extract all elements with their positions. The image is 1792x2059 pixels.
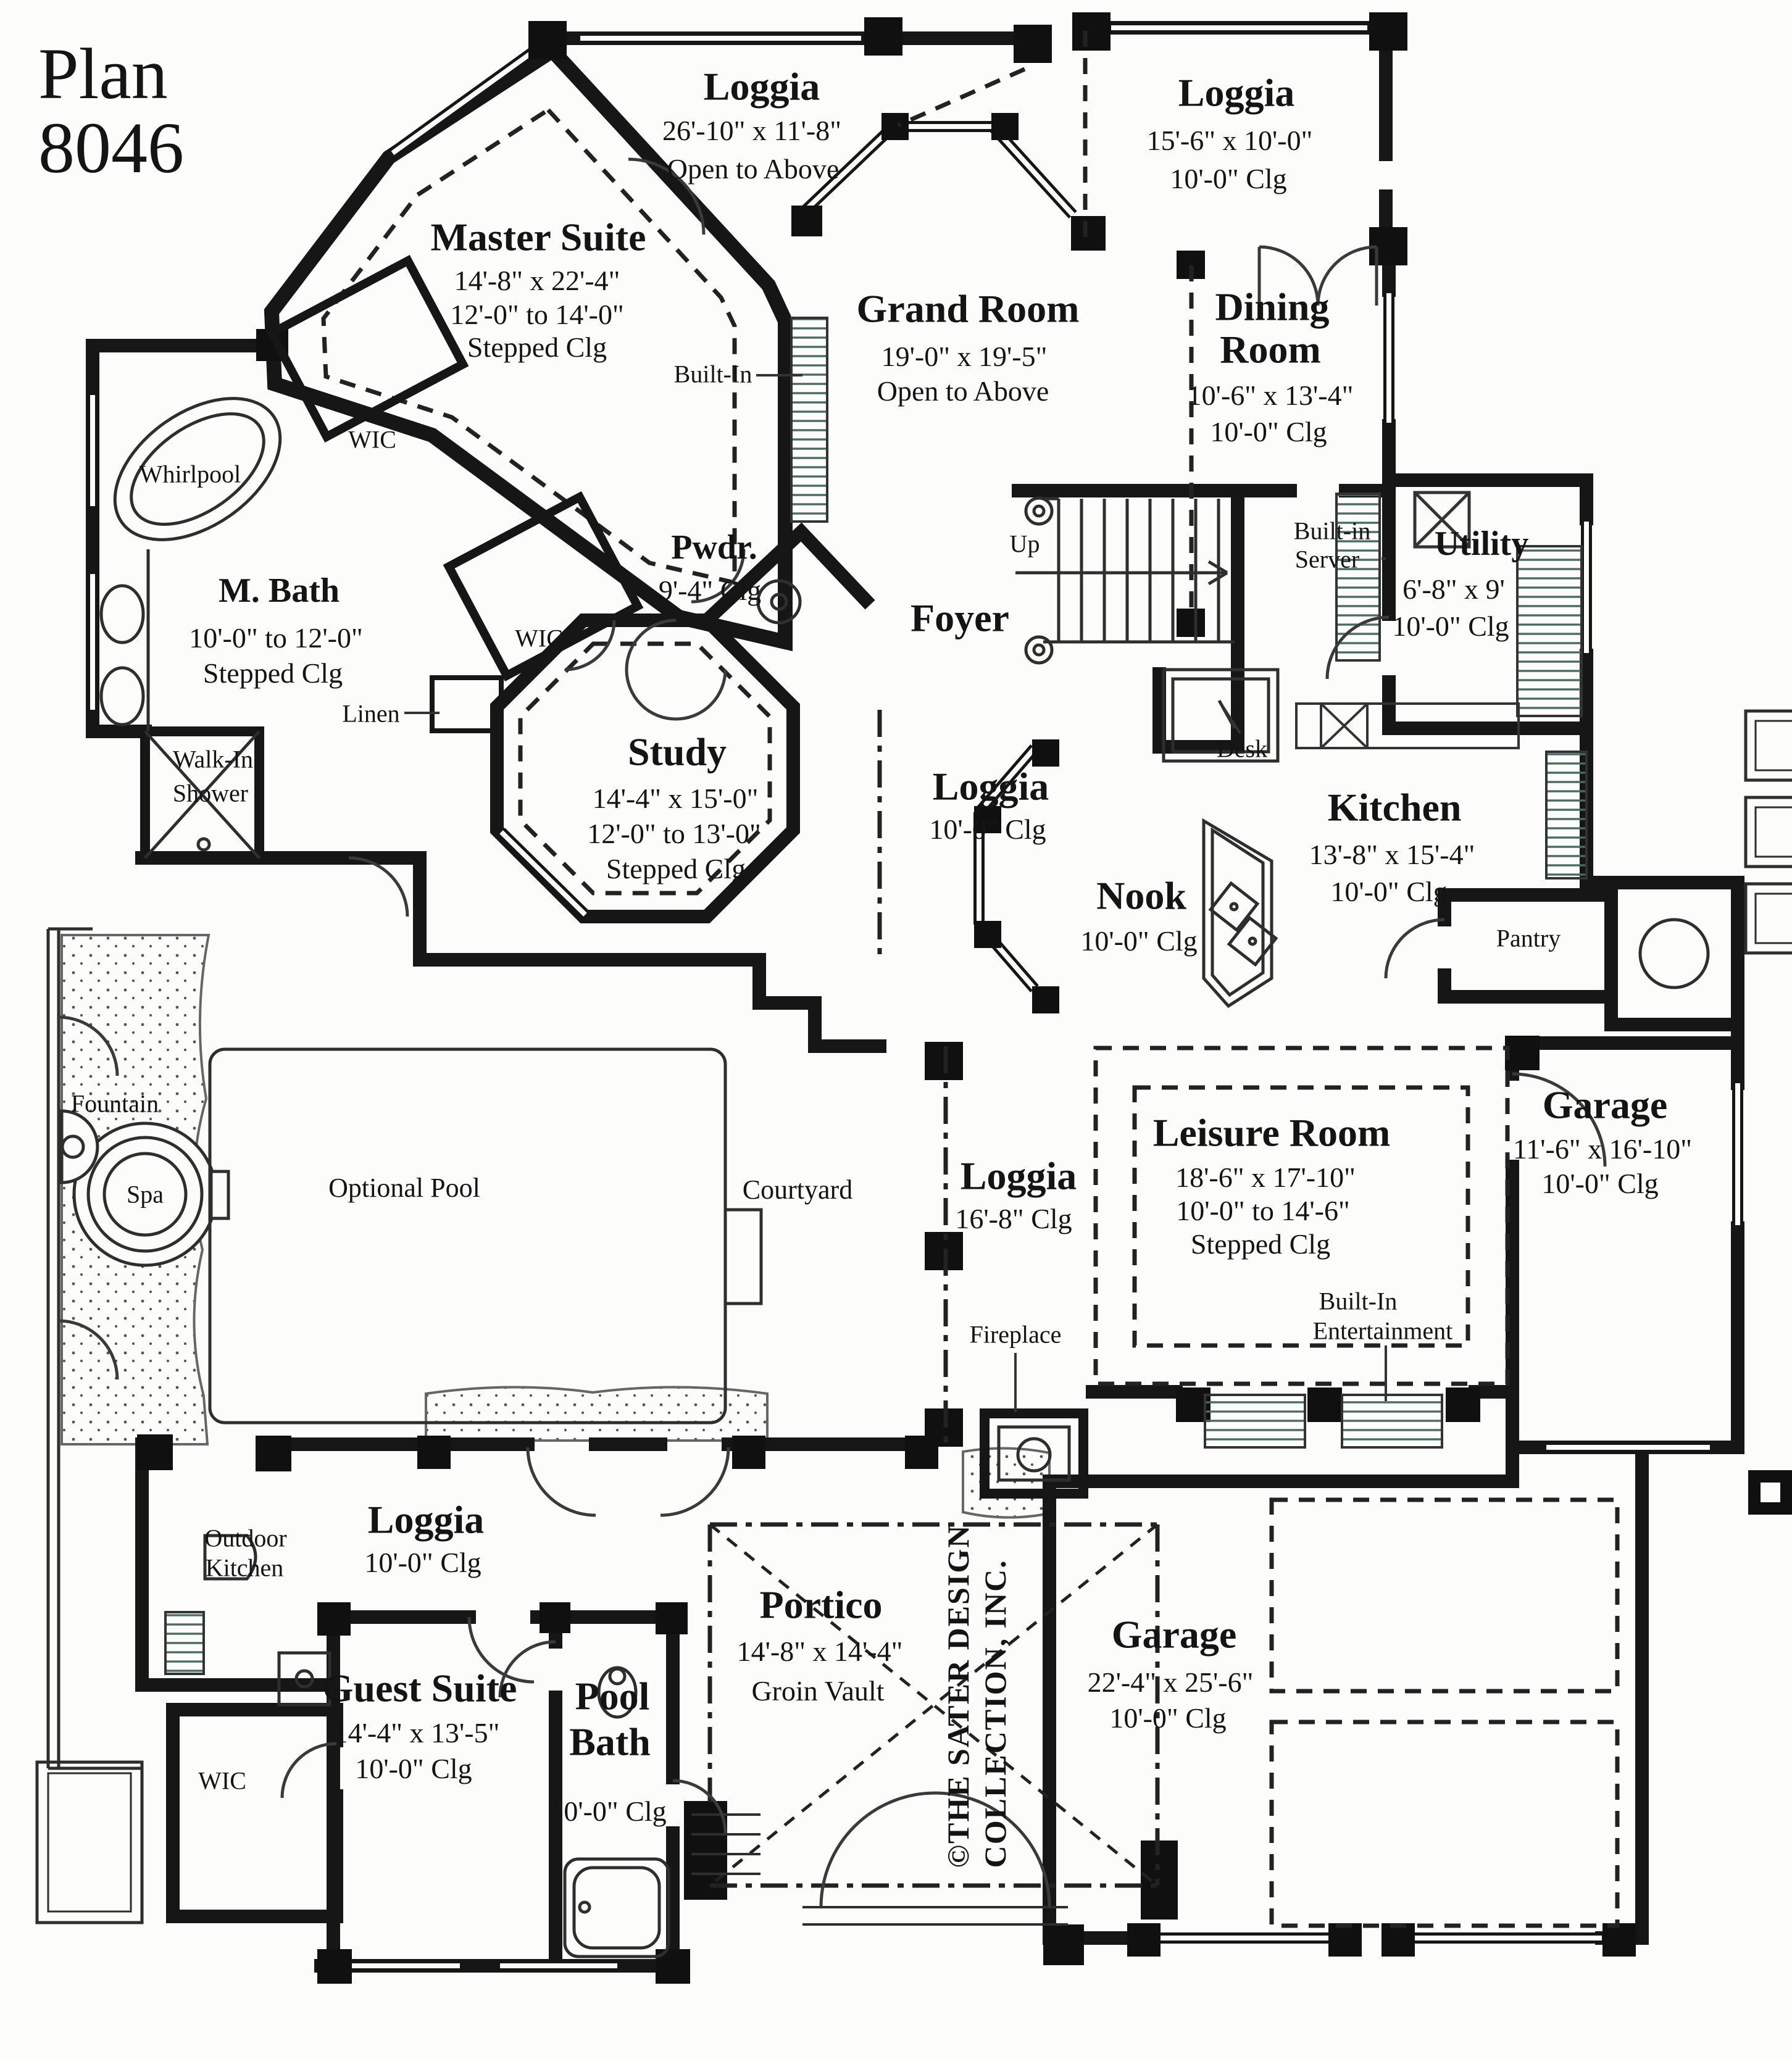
built-in-server-label-2: Server — [1295, 546, 1359, 572]
spa-label: Spa — [127, 1181, 164, 1207]
leisure-dim: 18'-6" x 17'-10" — [1175, 1162, 1356, 1193]
plan-title-line1: Plan — [38, 37, 184, 111]
built-in-server-label-1: Built-in — [1294, 517, 1370, 544]
plan-title: Plan 8046 — [38, 37, 184, 186]
loggia-master-note: Open to Above — [667, 154, 840, 185]
dining-room-label-1: Dining — [1215, 285, 1330, 328]
outdoor-kitchen-label-2: Kitchen — [206, 1554, 284, 1581]
master-suite-dim: 14'-8" x 22'-4" — [454, 265, 620, 296]
foyer-label: Foyer — [911, 596, 1009, 639]
staircase — [1015, 498, 1235, 663]
optional-pool-label: Optional Pool — [328, 1173, 480, 1203]
up-label: Up — [1010, 530, 1040, 557]
copyright-text: ©THE SATER DESIGN COLLECTION, INC. — [940, 1524, 1014, 1868]
guest-suite-dim: 14'-4" x 13'-5" — [334, 1718, 500, 1749]
garage-side-label: Garage — [1543, 1083, 1668, 1126]
loggia-guest-clg: 10'-0" Clg — [364, 1547, 481, 1578]
loggia-courtyard-label: Loggia — [961, 1154, 1077, 1197]
dining-room-clg: 10'-0" Clg — [1210, 417, 1327, 447]
dining-room-label-2: Room — [1220, 328, 1321, 370]
leisure-clg2: Stepped Clg — [1191, 1229, 1330, 1260]
study-clg: 12'-0" to 13'-0" — [587, 818, 761, 849]
leisure-label: Leisure Room — [1153, 1111, 1391, 1154]
water-heater — [1640, 920, 1708, 988]
dining-room-dim: 10'-6" x 13'-4" — [1188, 380, 1354, 411]
pool-bath-clg: 10'-0" Clg — [549, 1796, 666, 1827]
entertainment-label-1: Built-In — [1319, 1287, 1398, 1314]
guest-suite-label: Guest Suite — [323, 1666, 517, 1709]
wic-guest-label: WIC — [198, 1767, 246, 1794]
kitchen-island — [1204, 821, 1276, 1006]
wic-master1-label: WIC — [348, 426, 396, 452]
garage-side-dim: 11'-6" x 16'-10" — [1513, 1134, 1692, 1165]
built-in-label: Built-In — [674, 360, 752, 387]
study-dim: 14'-4" x 15'-0" — [593, 783, 759, 814]
grand-room-dim: 19'-0" x 19'-5" — [881, 341, 1048, 372]
desk-label: Desk — [1217, 735, 1267, 762]
garage-pad-inner — [1761, 1483, 1780, 1502]
master-suite-label: Master Suite — [431, 215, 646, 258]
garage-main-dim: 22'-4" x 25'-6" — [1088, 1667, 1254, 1698]
m-bath-label: M. Bath — [219, 572, 340, 609]
loggia-master-label: Loggia — [704, 65, 820, 107]
loggia-courtyard-clg: 16'-8" Clg — [955, 1204, 1072, 1234]
nook-label: Nook — [1096, 874, 1186, 917]
garage-main-clg: 10'-0" Clg — [1109, 1703, 1226, 1734]
loggia-study-label: Loggia — [933, 765, 1049, 807]
outdoor-kitchen-label-1: Outdoor — [204, 1524, 286, 1551]
loggia-entry-dim: 15'-6" x 10'-0" — [1147, 125, 1313, 156]
fireplace-label: Fireplace — [970, 1321, 1062, 1347]
loggia-entry-label: Loggia — [1178, 71, 1294, 114]
wic-master2-label: WIC — [515, 625, 563, 651]
garage-main-label: Garage — [1112, 1613, 1237, 1655]
pwdr-clg: 9'-4" Clg — [659, 575, 761, 606]
utility-dim: 6'-8" x 9' — [1402, 574, 1505, 605]
grand-room-note: Open to Above — [877, 376, 1049, 407]
pwdr-label: Pwdr. — [671, 529, 757, 566]
loggia-master-dim: 26'-10" x 11'-8" — [662, 115, 841, 146]
study-clg2: Stepped Clg — [606, 854, 746, 884]
utility-clg: 10'-0" Clg — [1392, 611, 1509, 642]
master-suite-clg2: Stepped Clg — [467, 332, 607, 363]
grand-room-label: Grand Room — [857, 287, 1080, 330]
fountain-label: Fountain — [71, 1090, 159, 1117]
kitchen-label: Kitchen — [1328, 786, 1462, 828]
courtyard-label: Courtyard — [743, 1175, 852, 1205]
guest-suite-clg: 10'-0" Clg — [355, 1753, 472, 1784]
nook-clg: 10'-0" Clg — [1080, 926, 1197, 957]
whirlpool-label: Whirlpool — [140, 460, 241, 487]
entertainment-label-2: Entertainment — [1313, 1317, 1453, 1344]
pool-bath-label-2: Bath — [569, 1720, 651, 1763]
copyright-line2: COLLECTION, INC. — [977, 1524, 1014, 1868]
garage-side-clg: 10'-0" Clg — [1541, 1168, 1658, 1199]
plan-title-line2: 8046 — [38, 111, 184, 185]
loggia-study-clg: 10'-0" Clg — [929, 814, 1046, 845]
dash-dot-lines — [710, 710, 1157, 1886]
floor-plan-page: Plan 8046 Master Suite 14'-8" x 22'-4" 1… — [0, 0, 1792, 2059]
portico-dim: 14'-8" x 14'-4" — [737, 1636, 903, 1667]
copyright-line1: ©THE SATER DESIGN — [940, 1524, 977, 1868]
pool-bath-label-1: Pool — [575, 1674, 650, 1717]
master-suite-clg: 12'-0" to 14'-0" — [450, 299, 624, 330]
linen-label: Linen — [342, 700, 399, 726]
utility-label: Utility — [1435, 525, 1528, 562]
walk-in-shower-label-2: Shower — [173, 780, 248, 806]
kitchen-dim: 13'-8" x 15'-4" — [1309, 839, 1475, 870]
loggia-guest-label: Loggia — [368, 1498, 484, 1541]
m-bath-clg: 10'-0" to 12'-0" — [189, 623, 363, 654]
m-bath-clg2: Stepped Clg — [203, 658, 343, 689]
leisure-clg: 10'-0" to 14'-6" — [1176, 1196, 1350, 1226]
loggia-entry-clg: 10'-0" Clg — [1170, 164, 1286, 194]
casework — [165, 318, 1586, 1674]
portico-note: Groin Vault — [751, 1676, 884, 1707]
walk-in-shower-label-1: Walk-In — [173, 746, 253, 772]
study-label: Study — [628, 730, 727, 773]
pantry-label: Pantry — [1496, 925, 1561, 951]
portico-label: Portico — [760, 1583, 883, 1626]
kitchen-clg: 10'-0" Clg — [1330, 876, 1447, 907]
